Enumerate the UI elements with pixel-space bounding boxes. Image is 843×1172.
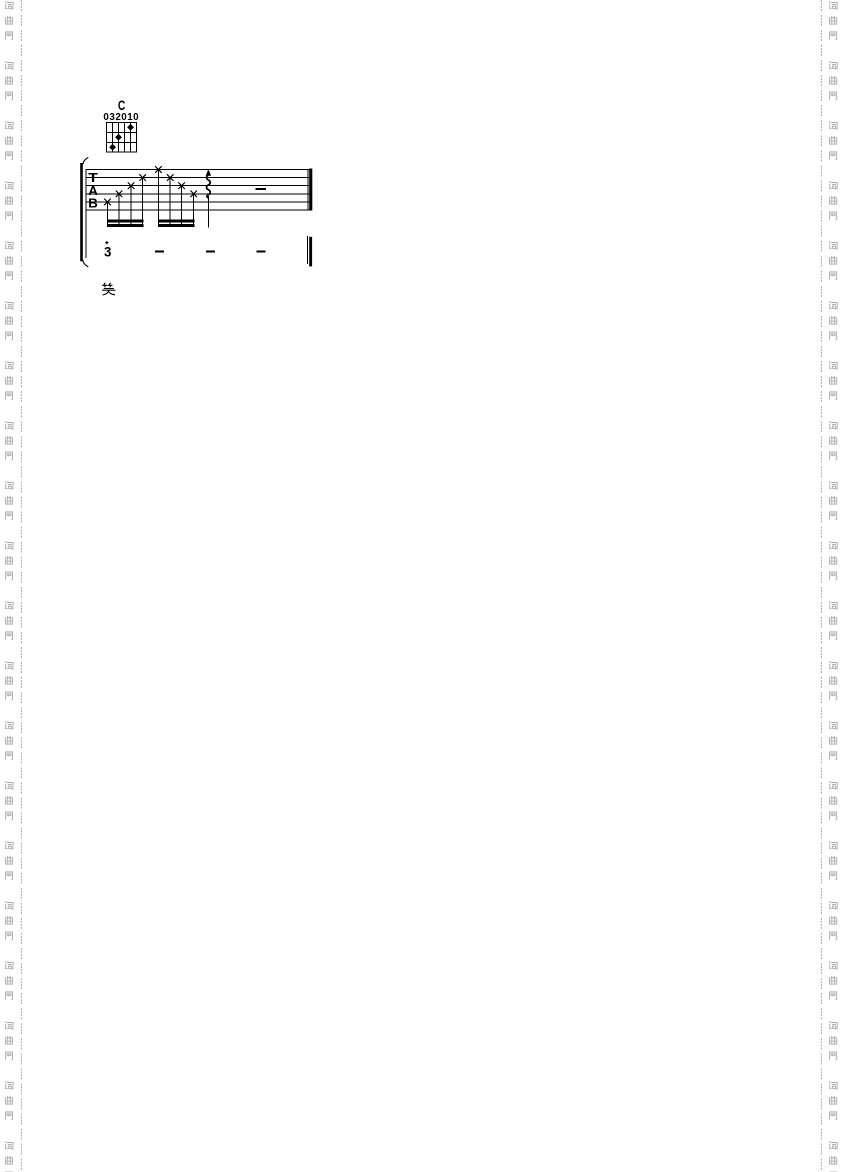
svg-text:3: 3 [104, 245, 111, 260]
svg-text:C: C [118, 97, 125, 113]
svg-text:B: B [88, 196, 98, 211]
svg-text:0: 0 [133, 112, 139, 123]
